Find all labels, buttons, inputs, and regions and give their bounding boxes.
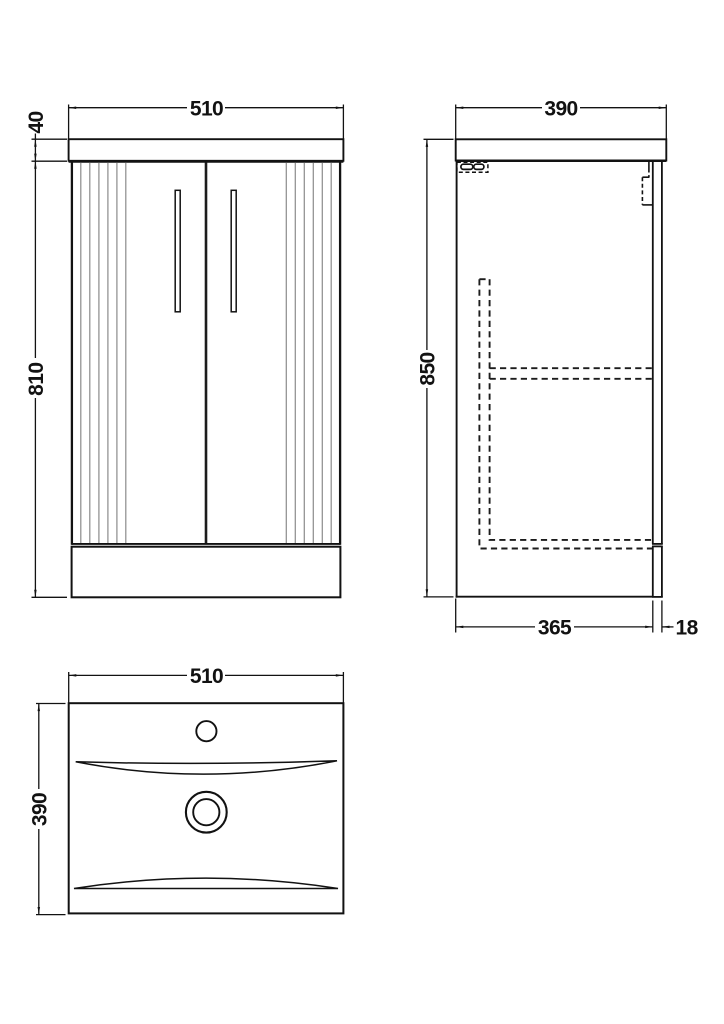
svg-text:390: 390: [544, 97, 577, 120]
svg-text:365: 365: [538, 617, 572, 640]
svg-text:510: 510: [190, 97, 223, 120]
svg-text:390: 390: [28, 793, 51, 826]
svg-text:510: 510: [190, 665, 223, 688]
svg-text:40: 40: [25, 111, 48, 133]
svg-text:810: 810: [25, 363, 48, 396]
svg-text:18: 18: [676, 617, 699, 640]
svg-text:850: 850: [417, 352, 440, 385]
